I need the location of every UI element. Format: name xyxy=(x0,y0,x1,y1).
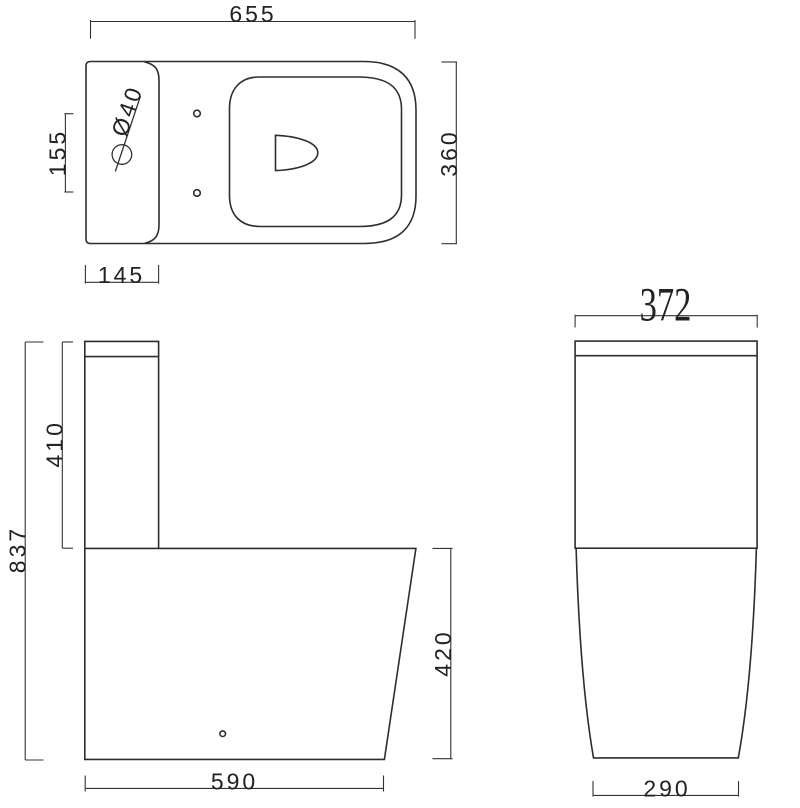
svg-text:410: 410 xyxy=(42,420,68,467)
svg-text:837: 837 xyxy=(4,526,30,573)
svg-text:590: 590 xyxy=(211,768,258,794)
svg-text:145: 145 xyxy=(98,262,145,288)
svg-text:360: 360 xyxy=(436,129,462,176)
svg-text:372: 372 xyxy=(640,279,692,332)
svg-text:290: 290 xyxy=(643,775,690,801)
svg-text:420: 420 xyxy=(430,629,456,676)
svg-text:655: 655 xyxy=(229,1,276,27)
svg-text:155: 155 xyxy=(45,129,71,176)
